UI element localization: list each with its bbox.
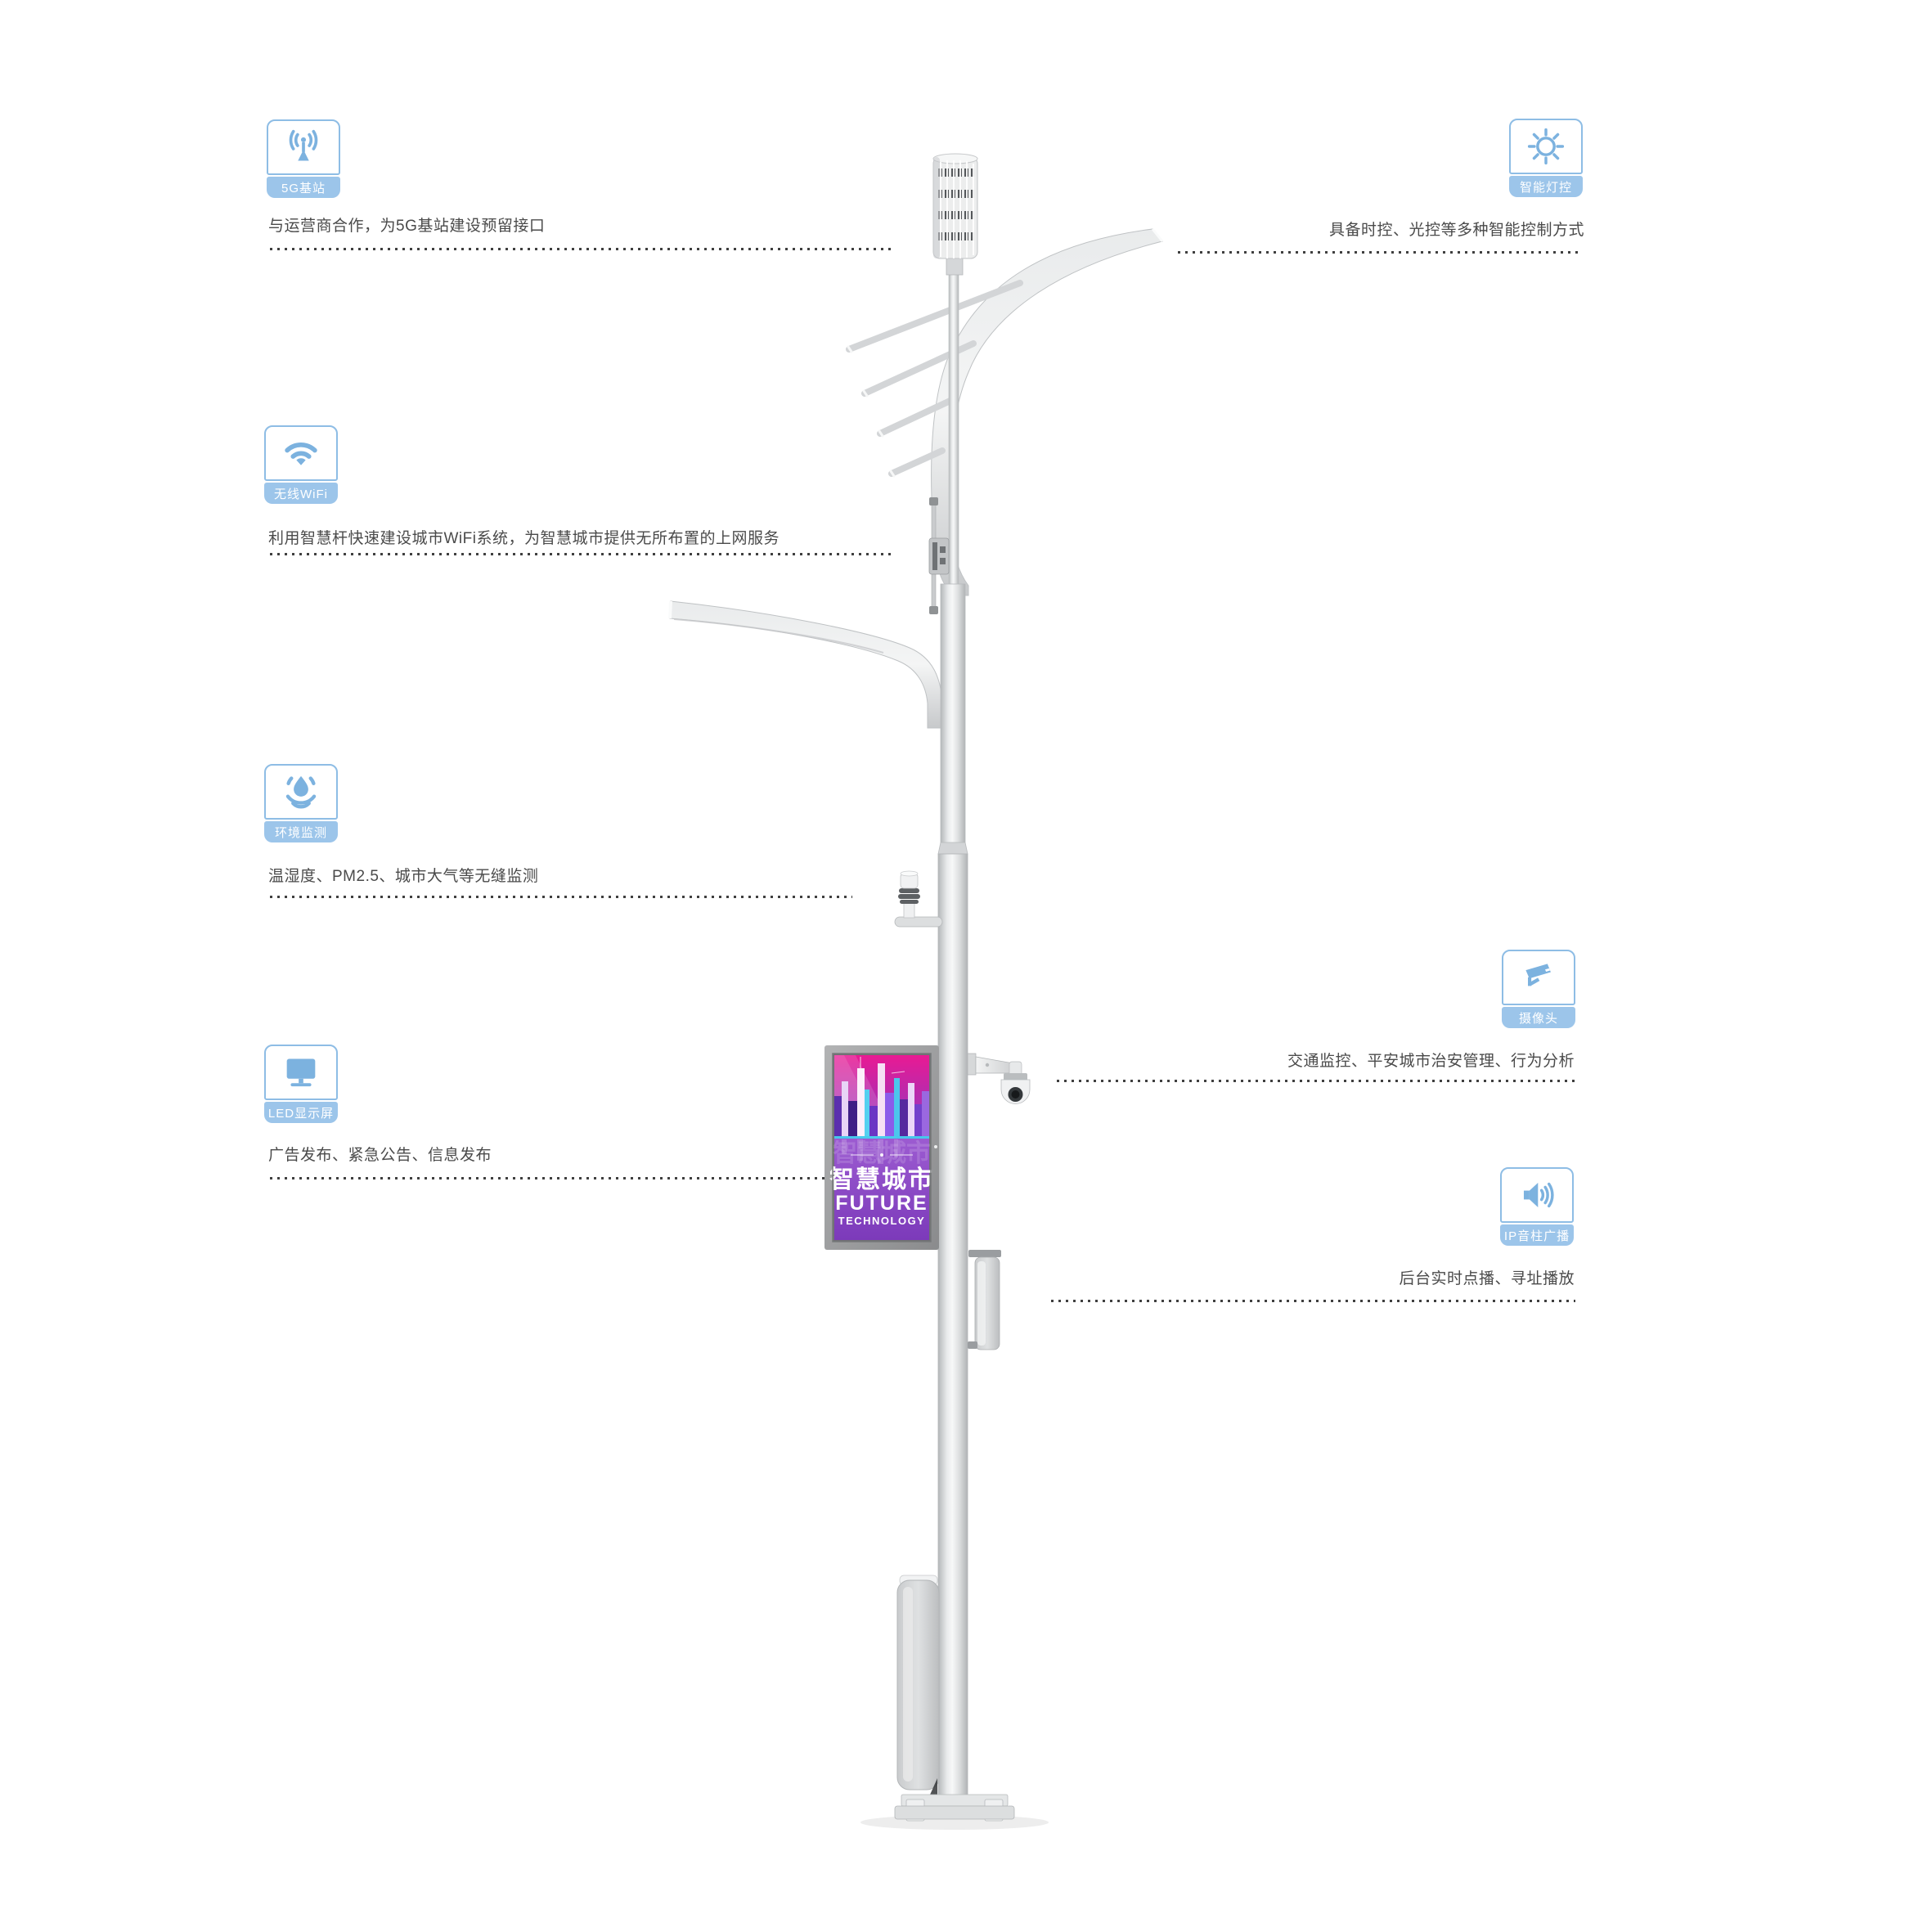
speaker-icon	[1500, 1167, 1574, 1223]
feature-label: 无线WiFi	[264, 483, 338, 504]
monitor-icon	[264, 1045, 338, 1100]
feature-desc: 交通监控、平安城市治安管理、行为分析	[1287, 1049, 1575, 1071]
feature-card-env: 环境监测	[264, 764, 338, 842]
pole-base	[860, 1795, 1049, 1830]
screen-poster: 智慧城市 智慧城市 FUTURE TECHNOLOGY	[829, 1055, 934, 1240]
feature-label: 环境监测	[264, 821, 338, 842]
environment-sensor	[895, 871, 942, 927]
feature-card-5g: 5G基站	[267, 119, 340, 198]
feature-card-light-control: 智能灯控	[1509, 119, 1583, 197]
poster-line3: TECHNOLOGY	[838, 1215, 926, 1227]
feature-desc: 与运营商合作，为5G基站建设预留接口	[268, 213, 545, 236]
feature-desc: 后台实时点播、寻址播放	[1399, 1266, 1575, 1288]
smart-pole-infographic: 5G基站 与运营商合作，为5G基站建设预留接口 无线WiFi 利用智慧杆快速建设…	[0, 0, 1932, 1932]
ptz-camera	[968, 1054, 1030, 1104]
control-cabinet	[897, 1575, 939, 1809]
feature-desc: 具备时控、光控等多种智能控制方式	[1329, 218, 1584, 240]
antenna-icon	[267, 119, 340, 175]
poster-headline-ghost: 智慧城市	[833, 1139, 931, 1167]
curved-top-arm	[932, 229, 1162, 595]
feature-card-camera: 摄像头	[1502, 950, 1575, 1028]
sun-icon	[1509, 119, 1583, 174]
antenna-mast	[949, 270, 959, 593]
cctv-camera-icon	[1502, 950, 1575, 1005]
feature-label: 5G基站	[267, 177, 340, 198]
poster-headline: 智慧城市	[829, 1166, 934, 1193]
led-screen: 智慧城市 智慧城市 FUTURE TECHNOLOGY	[824, 1045, 939, 1250]
dotted-divider	[1178, 251, 1582, 254]
feature-card-led: LED显示屏	[264, 1045, 338, 1123]
feature-card-speaker: IP音柱广播	[1500, 1167, 1574, 1246]
feature-card-wifi: 无线WiFi	[264, 425, 338, 504]
feature-desc: 广告发布、紧急公告、信息发布	[268, 1143, 492, 1165]
feature-desc: 温湿度、PM2.5、城市大气等无缝监测	[268, 864, 538, 886]
speaker-column	[968, 1250, 1001, 1350]
feature-label: LED显示屏	[264, 1102, 338, 1123]
upper-pole	[941, 584, 965, 844]
smart-pole-illustration: 智慧城市 智慧城市 FUTURE TECHNOLOGY	[573, 115, 1194, 1849]
feature-label: 摄像头	[1502, 1007, 1575, 1028]
wifi-icon	[264, 425, 338, 481]
feature-label: 智能灯控	[1509, 176, 1583, 197]
water-drop-icon	[264, 764, 338, 820]
5g-antenna-cylinder	[933, 154, 977, 275]
main-pole	[938, 854, 968, 1796]
street-lamp-arm	[670, 601, 942, 728]
pole-taper	[938, 842, 968, 854]
feature-label: IP音柱广播	[1500, 1224, 1574, 1246]
poster-line2: FUTURE	[835, 1192, 928, 1215]
